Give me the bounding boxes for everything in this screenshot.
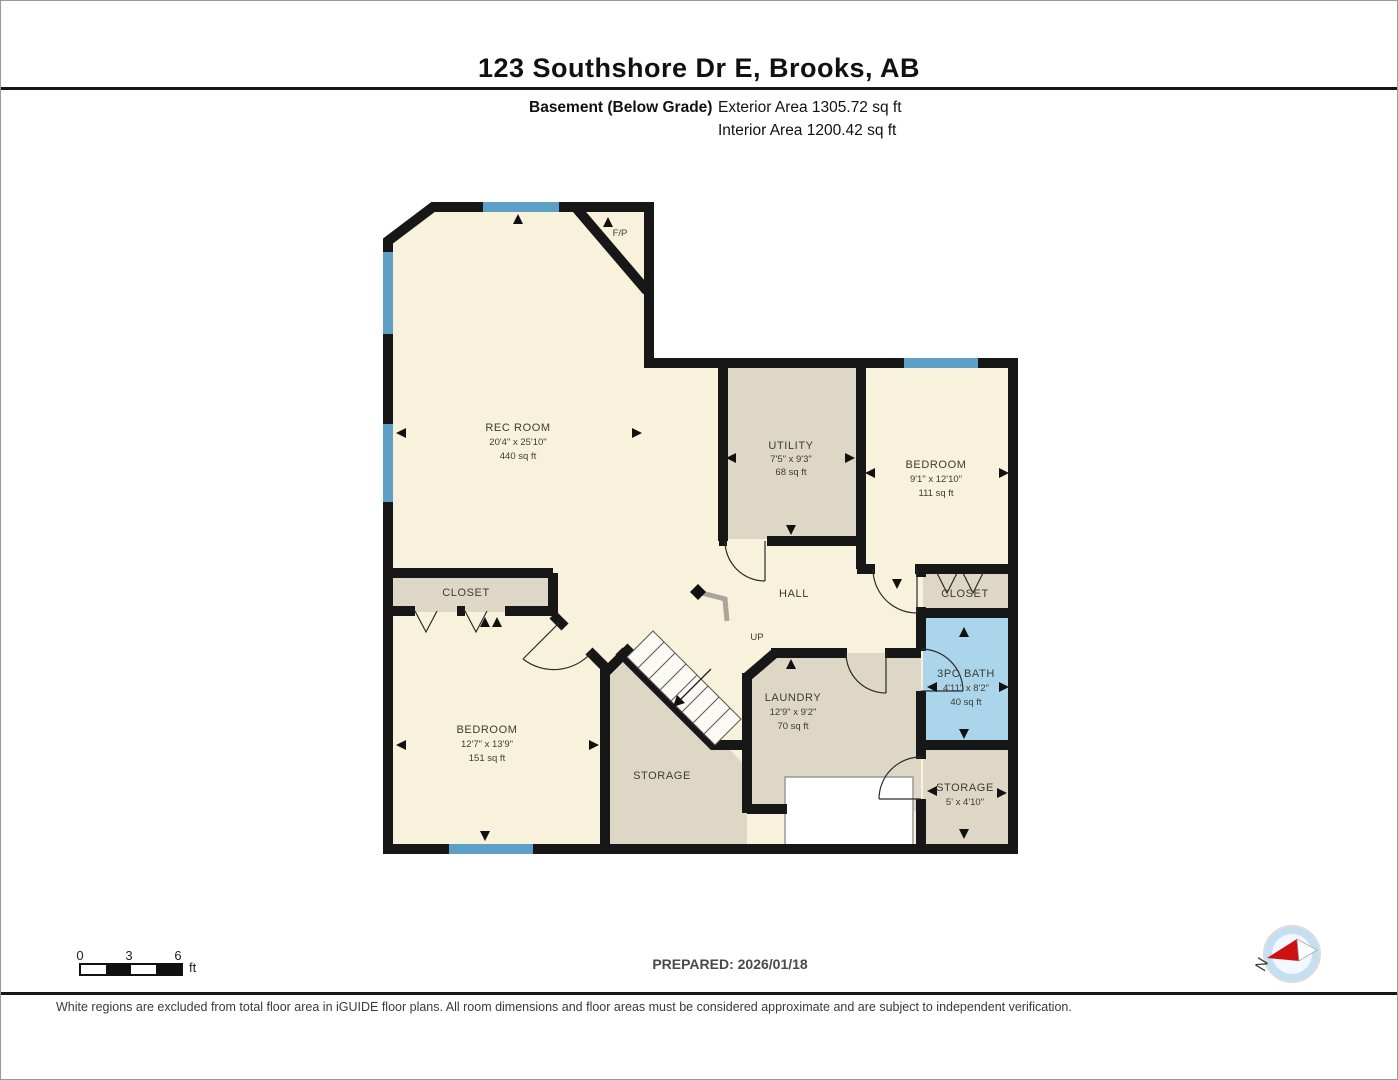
label-closet-e: CLOSET	[941, 588, 989, 600]
label-laundry-area: 70 sq ft	[777, 721, 809, 732]
header-divider	[1, 87, 1397, 90]
label-utility-dims: 7'5" x 9'3"	[770, 454, 812, 465]
prepared-date: PREPARED: 2026/01/18	[61, 956, 1398, 972]
floor-label: Basement (Below Grade)	[529, 99, 712, 117]
label-stairs-up: UP	[750, 632, 763, 643]
compass: N	[1253, 918, 1327, 992]
label-bedroom-ne-dims: 9'1" x 12'10"	[910, 474, 962, 485]
label-laundry: LAUNDRY	[765, 692, 822, 704]
label-hall: HALL	[779, 588, 809, 600]
label-bath: 3PC BATH	[937, 668, 995, 680]
label-laundry-dims: 12'9" x 9'2"	[770, 707, 817, 718]
label-storage-se: STORAGE	[936, 782, 994, 794]
label-fireplace: F/P	[613, 228, 628, 239]
label-bath-dims: 4'11" x 8'2"	[943, 683, 989, 694]
label-rec-room-area: 440 sq ft	[500, 451, 537, 462]
label-utility-area: 68 sq ft	[775, 467, 807, 478]
label-bedroom-sw: BEDROOM	[456, 724, 517, 736]
label-rec-room: REC ROOM	[485, 422, 550, 434]
label-utility: UTILITY	[768, 440, 813, 452]
interior-area: Interior Area 1200.42 sq ft	[718, 122, 896, 140]
label-bedroom-ne: BEDROOM	[905, 459, 966, 471]
label-bedroom-sw-area: 151 sq ft	[469, 753, 506, 764]
label-bedroom-ne-area: 111 sq ft	[918, 488, 953, 499]
disclaimer-text: White regions are excluded from total fl…	[56, 1000, 1072, 1014]
floor-plan: REC ROOM 20'4" x 25'10" 440 sq ft UTILIT…	[376, 194, 1026, 864]
label-rec-room-dims: 20'4" x 25'10"	[489, 437, 546, 448]
label-closet-w: CLOSET	[442, 587, 490, 599]
label-storage-se-dims: 5' x 4'10"	[946, 797, 984, 808]
exterior-area: Exterior Area 1305.72 sq ft	[718, 99, 902, 117]
page-title: 123 Southshore Dr E, Brooks, AB	[1, 53, 1397, 84]
label-storage-mid: STORAGE	[633, 770, 691, 782]
floor-plan-page: 123 Southshore Dr E, Brooks, AB Basement…	[0, 0, 1398, 1080]
footer-divider	[1, 992, 1397, 995]
label-bedroom-sw-dims: 12'7" x 13'9"	[461, 739, 513, 750]
label-bath-area: 40 sq ft	[950, 697, 982, 708]
